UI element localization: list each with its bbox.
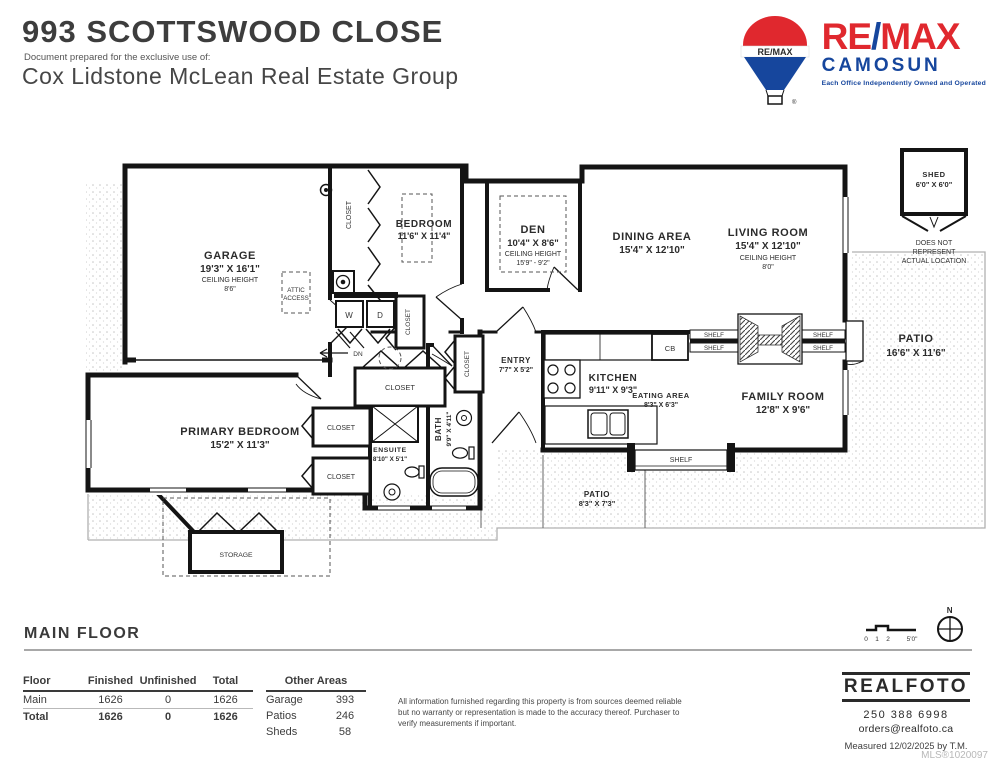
col-unfinished: Unfinished — [138, 674, 198, 691]
scale-0: 0 — [864, 636, 868, 643]
page-title: 993 SCOTTSWOOD CLOSE — [22, 14, 443, 50]
svg-text:®: ® — [792, 99, 797, 106]
remax-tagline: Each Office Independently Owned and Oper… — [822, 80, 986, 87]
ensuite-toilet — [405, 467, 419, 477]
closet-label: CLOSET — [464, 351, 471, 377]
patio-main-dims: 16'6" X 11'6" — [886, 348, 946, 359]
attic-label-1: ATTIC — [287, 287, 305, 294]
bath-sink — [457, 411, 472, 426]
mls-number: MLS®1020097 — [0, 750, 988, 761]
living-dims: 15'4" X 12'10" — [735, 241, 801, 252]
realfoto-bar-bottom — [842, 699, 970, 702]
closet-label: CLOSET — [346, 200, 353, 229]
area-table: Floor Finished Unfinished Total Main 162… — [23, 674, 253, 725]
scale-2: 2 — [886, 636, 890, 643]
bedroom-name: BEDROOM — [396, 219, 452, 230]
other-areas-title: Other Areas — [266, 674, 366, 691]
remax-wordmark: RE/MAX — [822, 20, 986, 53]
client-name: Cox Lidstone McLean Real Estate Group — [22, 63, 459, 90]
prepared-for-line: Document prepared for the exclusive use … — [24, 52, 210, 63]
cb-label: CB — [665, 344, 675, 353]
patio-small-name: PATIO — [584, 490, 610, 499]
stove — [544, 360, 580, 398]
closet-label: CLOSET — [385, 383, 415, 392]
ensuite-dims: 8'10" X 5'1" — [373, 456, 407, 463]
attic-label-2: ACCESS — [283, 295, 308, 302]
col-floor: Floor — [23, 674, 83, 691]
shed-name: SHED — [922, 170, 945, 179]
patio-main-name: PATIO — [899, 333, 934, 345]
compass: N — [938, 606, 962, 641]
living-ch-label: CEILING HEIGHT — [740, 255, 797, 262]
yard-strip — [88, 494, 497, 540]
garage-dims: 19'3" X 16'1" — [200, 264, 260, 275]
hall-dashed-circle — [379, 347, 401, 369]
patio-small-dims: 8'3" X 7'3" — [579, 499, 616, 508]
realfoto-email: orders@realfoto.ca — [840, 723, 972, 735]
north-label: N — [947, 606, 953, 615]
shelf-label: SHELF — [704, 332, 724, 339]
shed-dims: 6'0" X 6'0" — [916, 180, 953, 189]
family-dims: 12'8" X 9'6" — [756, 405, 811, 416]
table-row: Garage 393 — [266, 691, 366, 708]
garage-door-opening — [136, 355, 322, 365]
remax-office-name: CAMOSUN — [822, 55, 986, 77]
disclaimer-text: All information furnished regarding this… — [398, 696, 688, 730]
svg-text:RE/MAX: RE/MAX — [757, 47, 792, 57]
shed-note-3: ACTUAL LOCATION — [902, 258, 967, 265]
bedroom-dims: 11'6" X 11'4" — [398, 231, 451, 241]
realfoto-logo: REALFOTO — [840, 675, 972, 699]
patio-main-area — [850, 252, 985, 528]
scale-bar: 0 1 2 5'0" — [864, 626, 918, 643]
realfoto-phone: 250 388 6998 — [840, 709, 972, 721]
garage-fixtures — [321, 185, 355, 294]
stairs-dn: DN — [320, 332, 364, 358]
shelf-label: SHELF — [813, 332, 833, 339]
bath-dims: 9'9" X 4'11" — [446, 412, 453, 447]
scale-1: 1 — [875, 636, 879, 643]
dining-name: DINING AREA — [613, 231, 692, 243]
garage-ch-value: 8'6" — [224, 286, 236, 293]
den-dims: 10'4" X 8'6" — [507, 238, 559, 249]
dining-dims: 15'4" X 12'10" — [619, 245, 685, 256]
den-ch-label: CEILING HEIGHT — [505, 251, 562, 258]
den-ch-value: 15'9" - 9'2" — [516, 260, 550, 267]
shelf-label: SHELF — [813, 345, 833, 352]
col-finished: Finished — [83, 674, 138, 691]
closet-label: CLOSET — [327, 425, 356, 432]
ensuite-name: ENSUITE — [373, 447, 407, 454]
living-ch-value: 8'0" — [762, 264, 774, 271]
table-row: Patios 246 — [266, 708, 366, 724]
shelf-label: SHELF — [670, 457, 693, 464]
shed-note-1: DOES NOT — [916, 240, 953, 247]
laundry: W D — [334, 292, 398, 327]
table-row: Main 1626 0 1626 — [23, 691, 253, 709]
entry-dims: 7'7" X 5'2" — [499, 367, 533, 374]
floor-title: MAIN FLOOR — [24, 625, 140, 643]
other-areas-table: Other Areas Garage 393 Patios 246 Sheds … — [266, 674, 366, 740]
realfoto-block: REALFOTO 250 388 6998 orders@realfoto.ca… — [840, 672, 972, 752]
divider-rule — [24, 649, 972, 651]
primary-dims: 15'2" X 11'3" — [210, 440, 270, 451]
den-name: DEN — [520, 224, 545, 236]
shed: SHED 6'0" X 6'0" DOES NOT REPRESENT ACTU… — [902, 150, 967, 265]
dn-label: DN — [353, 351, 363, 358]
remax-logo: RE/MAX ® RE/MAX CAMOSUN Each Office Inde… — [734, 12, 986, 108]
col-total: Total — [198, 674, 253, 691]
shelf-niche: SHELF — [627, 443, 735, 472]
kitchen-name: KITCHEN — [589, 373, 638, 384]
garage-name: GARAGE — [204, 250, 256, 262]
remax-balloon-icon: RE/MAX ® — [734, 12, 816, 108]
washer-label: W — [345, 311, 353, 320]
table-row: Sheds 58 — [266, 724, 366, 740]
shelf-label: SHELF — [704, 345, 724, 352]
scale-5: 5'0" — [907, 636, 918, 643]
garage-ch-label: CEILING HEIGHT — [202, 277, 259, 284]
kitchen-dims: 9'11" X 9'3" — [589, 385, 637, 395]
primary-name: PRIMARY BEDROOM — [180, 426, 300, 438]
floor-plan: W D DN CB — [0, 0, 994, 768]
bath-toilet — [453, 448, 468, 458]
eating-dims: 8'3" X 6'3" — [644, 402, 678, 409]
storage-label: STORAGE — [219, 552, 253, 559]
kitchen-sink — [588, 410, 628, 438]
dryer-label: D — [377, 311, 383, 320]
closet-label: CLOSET — [327, 474, 356, 481]
shed-note-2: REPRESENT — [913, 249, 957, 256]
eating-name: EATING AREA — [632, 391, 689, 400]
fireplace-shelves: SHELF SHELF SHELF SHELF — [690, 314, 845, 364]
living-name: LIVING ROOM — [728, 227, 809, 239]
bath-name: BATH — [434, 417, 443, 441]
family-name: FAMILY ROOM — [742, 391, 825, 403]
driveway-strip — [86, 183, 123, 375]
entry-name: ENTRY — [501, 356, 531, 365]
table-row-total: Total 1626 0 1626 — [23, 709, 253, 726]
patio-door — [846, 321, 863, 365]
closet-label: CLOSET — [405, 309, 412, 335]
